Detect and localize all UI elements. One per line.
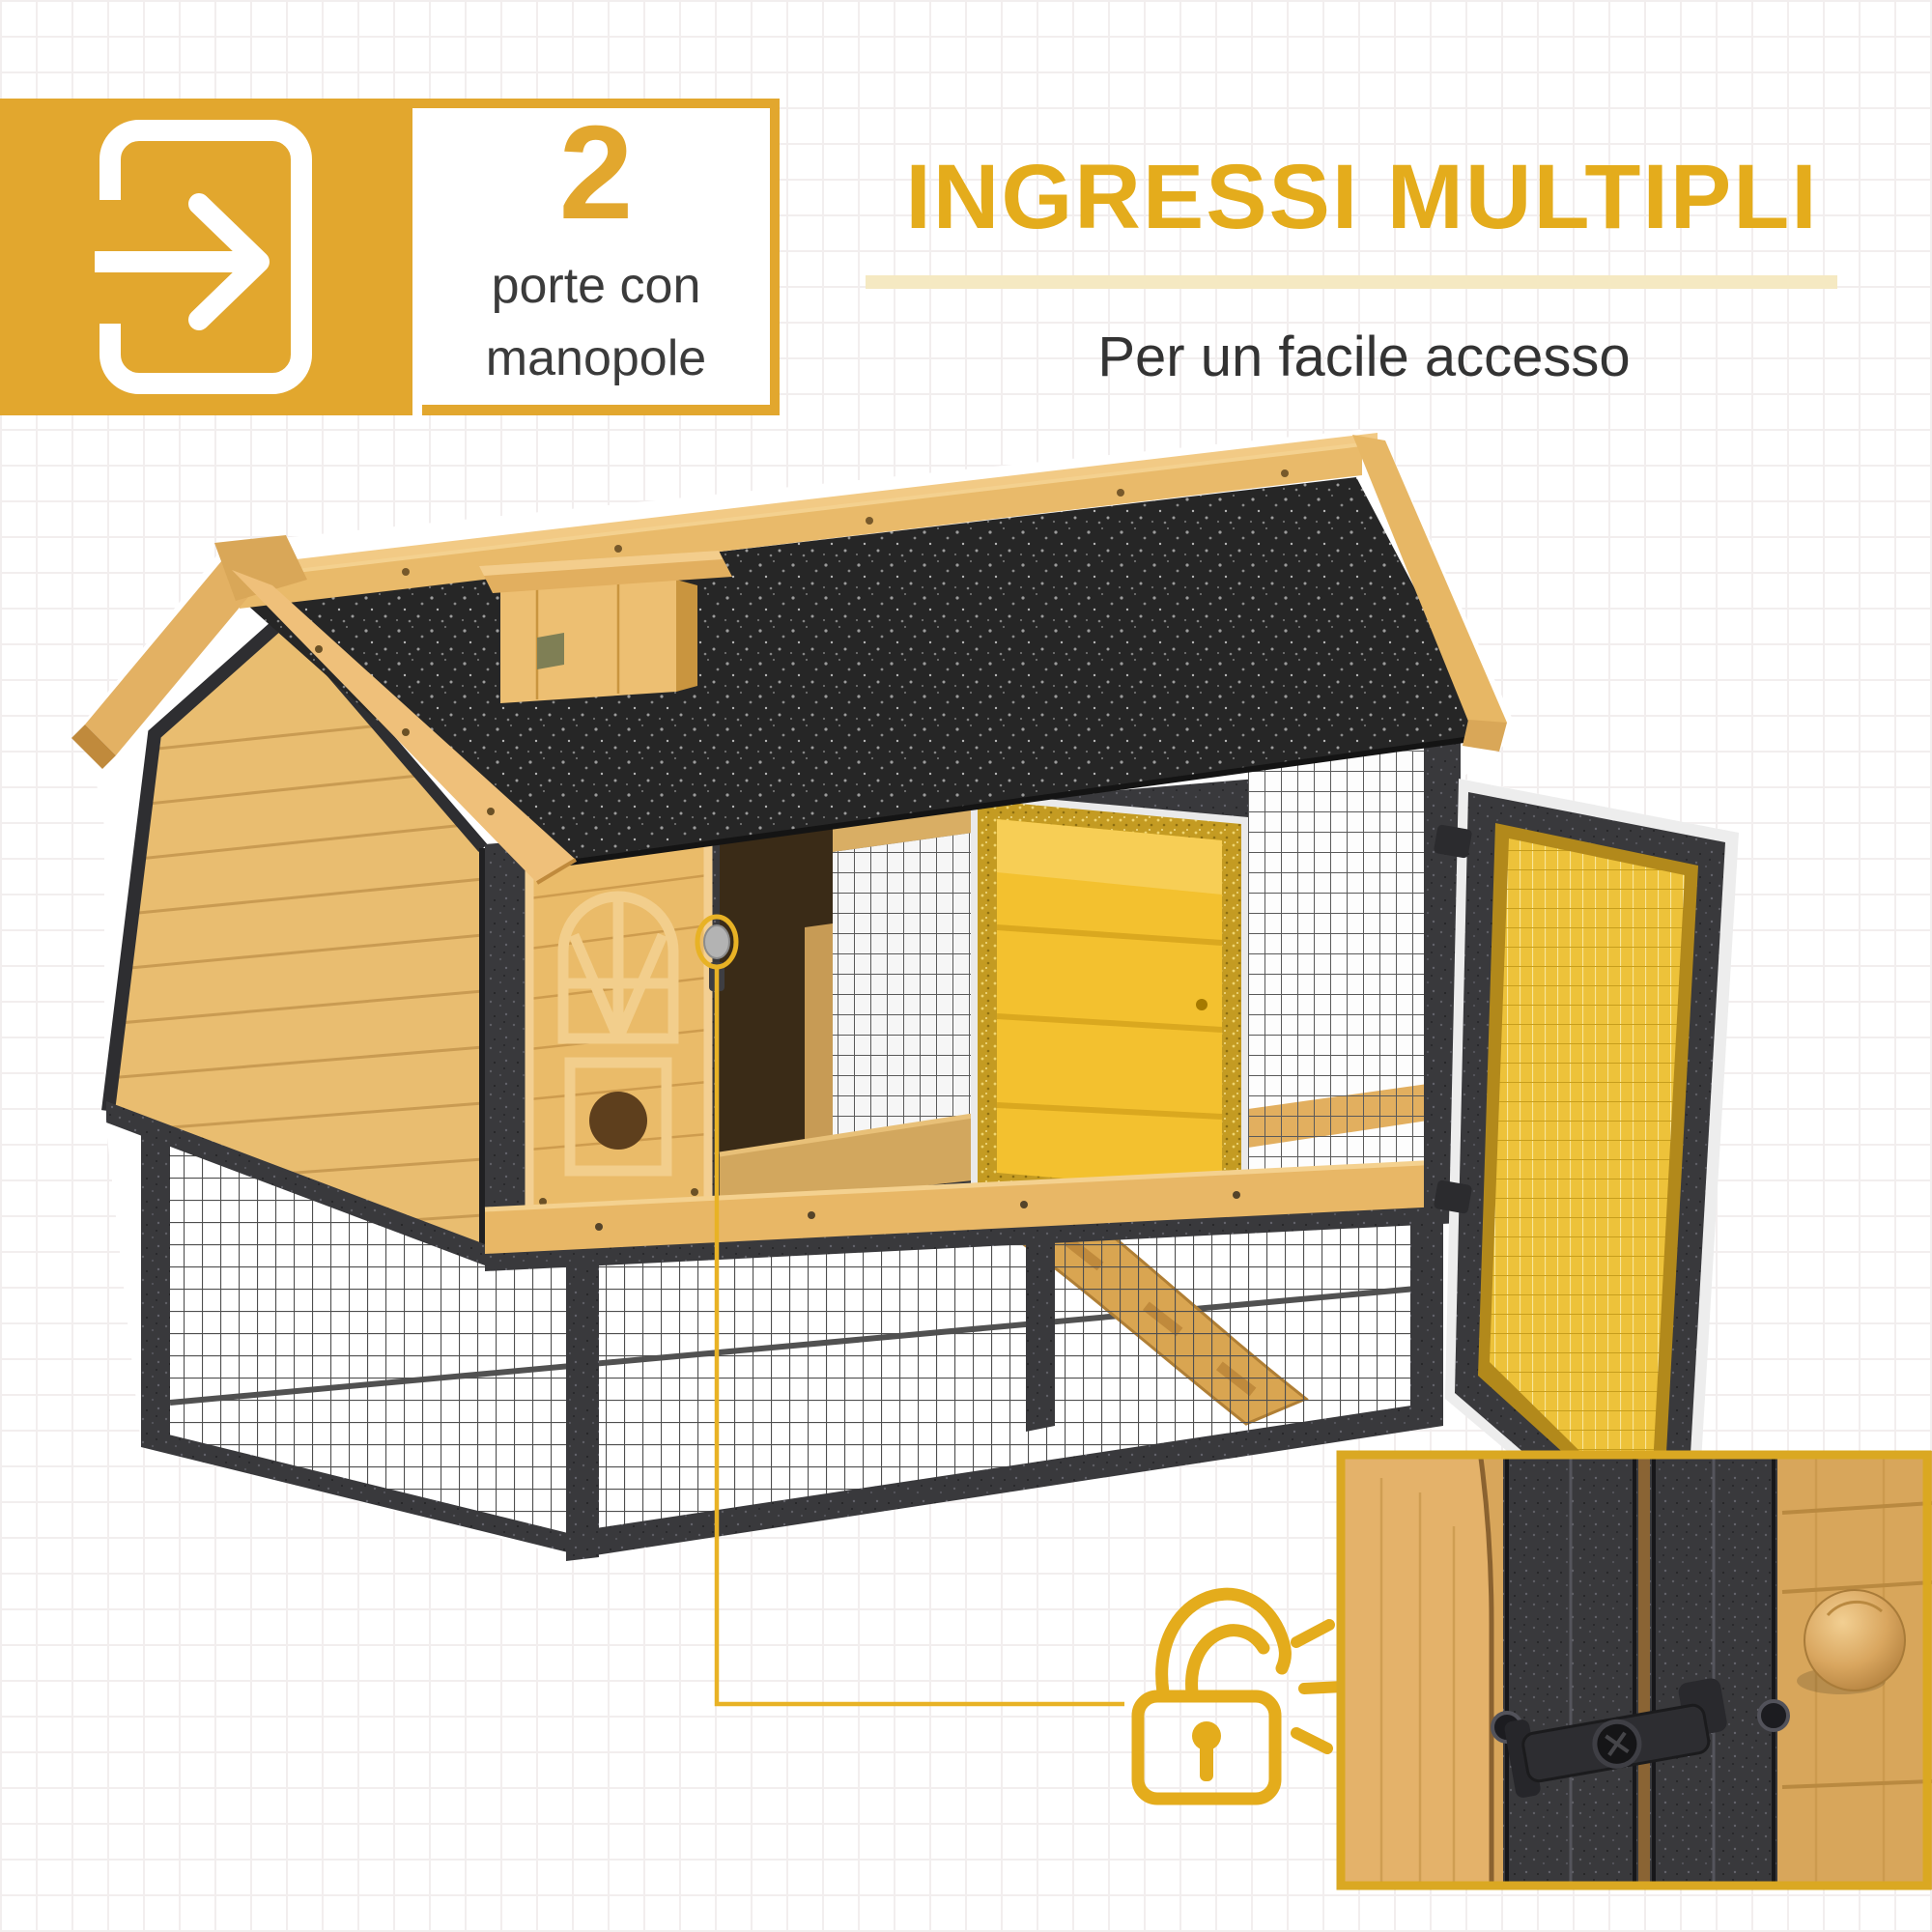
wood-door (529, 823, 708, 1219)
nest-box (479, 551, 732, 703)
doorway-opening (720, 788, 973, 1207)
hinge-top (1434, 824, 1473, 859)
coop-illustration (0, 0, 1932, 1932)
page: 2 porte con manopole INGRESSI MULTIPLI P… (0, 0, 1932, 1932)
nest-box-bracket (537, 633, 564, 669)
detail-inset (1337, 1451, 1932, 1889)
padlock-keyhole (1192, 1721, 1221, 1781)
open-padlock-icon (1138, 1594, 1343, 1799)
click-marks (1296, 1625, 1343, 1748)
hutch-front-mesh (1248, 750, 1428, 1184)
inset-wood-knob (1804, 1590, 1905, 1690)
door-hole (589, 1092, 647, 1150)
hinge-bottom (1434, 1179, 1473, 1214)
inset-door-edge (1337, 1451, 1492, 1889)
yellow-access-door (971, 792, 1248, 1219)
door-knob (704, 925, 729, 958)
